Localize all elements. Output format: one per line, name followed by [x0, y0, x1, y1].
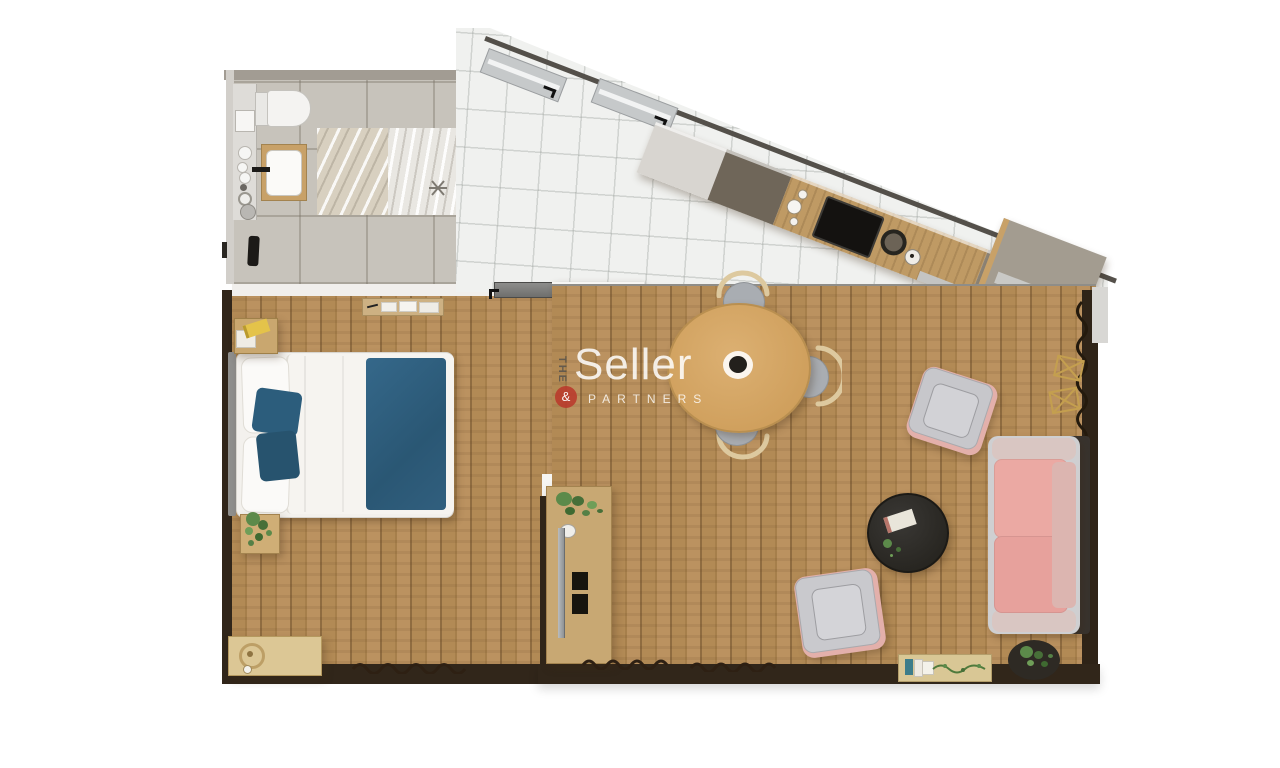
- armchair-bottom-seat: [810, 583, 867, 641]
- faucet: [252, 167, 270, 172]
- living-rug-fringe-1: [580, 656, 672, 670]
- watermark-name: Seller: [574, 340, 693, 390]
- vanity-knob-6: [240, 204, 256, 220]
- bedroom-plant: [246, 512, 260, 526]
- vanity-knob-4: [240, 184, 247, 191]
- dresser-knob: [243, 665, 252, 674]
- pink-sofa: [988, 436, 1080, 634]
- shelf-card-2: [399, 301, 417, 312]
- shelf-card-3: [419, 302, 439, 313]
- book-teal: [905, 659, 913, 675]
- watermark: THE Seller & PARTNERS: [550, 340, 740, 426]
- duvet-fold-line: [304, 356, 306, 512]
- bedroom-rug-fringe: [350, 660, 466, 674]
- sink-tap-2: [788, 216, 800, 228]
- sink-basin-round: [785, 197, 804, 216]
- watermark-amp-badge: &: [555, 386, 577, 408]
- door-hinge-mark-2: [489, 289, 492, 299]
- sink-tap-1: [796, 188, 809, 201]
- bed-headboard: [228, 352, 236, 516]
- plant-pot-leaves: [1020, 646, 1033, 658]
- bedroom-door-threshold: [494, 282, 560, 298]
- console-speaker-1: [572, 572, 588, 590]
- marble-shower-tile-right: [388, 128, 459, 215]
- watermark-amp: &: [562, 389, 571, 404]
- gold-wire-decor: [1046, 354, 1090, 416]
- vanity-cabinet: [235, 110, 255, 132]
- bookshelf: [898, 654, 992, 682]
- dark-mat: [247, 236, 260, 267]
- vanity-knob-3: [239, 172, 251, 184]
- coffee-table-books: [883, 509, 916, 533]
- dresser-swirl-dot: [247, 651, 253, 657]
- console-speaker-2: [572, 594, 588, 614]
- living-rug-fringe-2: [688, 660, 780, 672]
- floorplan-canvas: THE Seller & PARTNERS: [0, 0, 1280, 768]
- coffee-table: [867, 493, 949, 573]
- tv-edge: [558, 528, 565, 638]
- watermark-the: THE: [556, 356, 568, 384]
- marble-shower-tile-left: [317, 128, 388, 215]
- plant-pot: [1008, 640, 1060, 680]
- wall-shelf: [362, 298, 444, 316]
- washbasin: [266, 150, 302, 196]
- watermark-partners: PARTNERS: [588, 392, 708, 406]
- toilet-bowl: [267, 90, 311, 127]
- coffee-table-sprig: [883, 539, 892, 548]
- shelf-pen: [367, 304, 378, 309]
- sofa-seat-column: [1052, 462, 1076, 608]
- duvet-fold-line-2: [342, 356, 344, 512]
- kitchen-end-panel: [1092, 287, 1108, 343]
- shelf-vine: [931, 661, 987, 675]
- console-plant: [556, 492, 572, 506]
- dresser: [228, 636, 322, 676]
- shelf-card-1: [381, 302, 397, 312]
- sofa-armrest-bottom: [992, 610, 1076, 632]
- armchair-bottom: [793, 567, 888, 660]
- blue-blanket: [366, 358, 446, 510]
- door-jamb-mark: [222, 242, 227, 258]
- vanity-knob-1: [238, 146, 252, 160]
- floor-drain: [428, 178, 448, 198]
- bathroom-top-wall: [224, 70, 482, 80]
- pillow-blue-2: [256, 430, 301, 482]
- pillow-blue-1: [251, 387, 303, 437]
- sofa-armrest-top: [992, 438, 1076, 460]
